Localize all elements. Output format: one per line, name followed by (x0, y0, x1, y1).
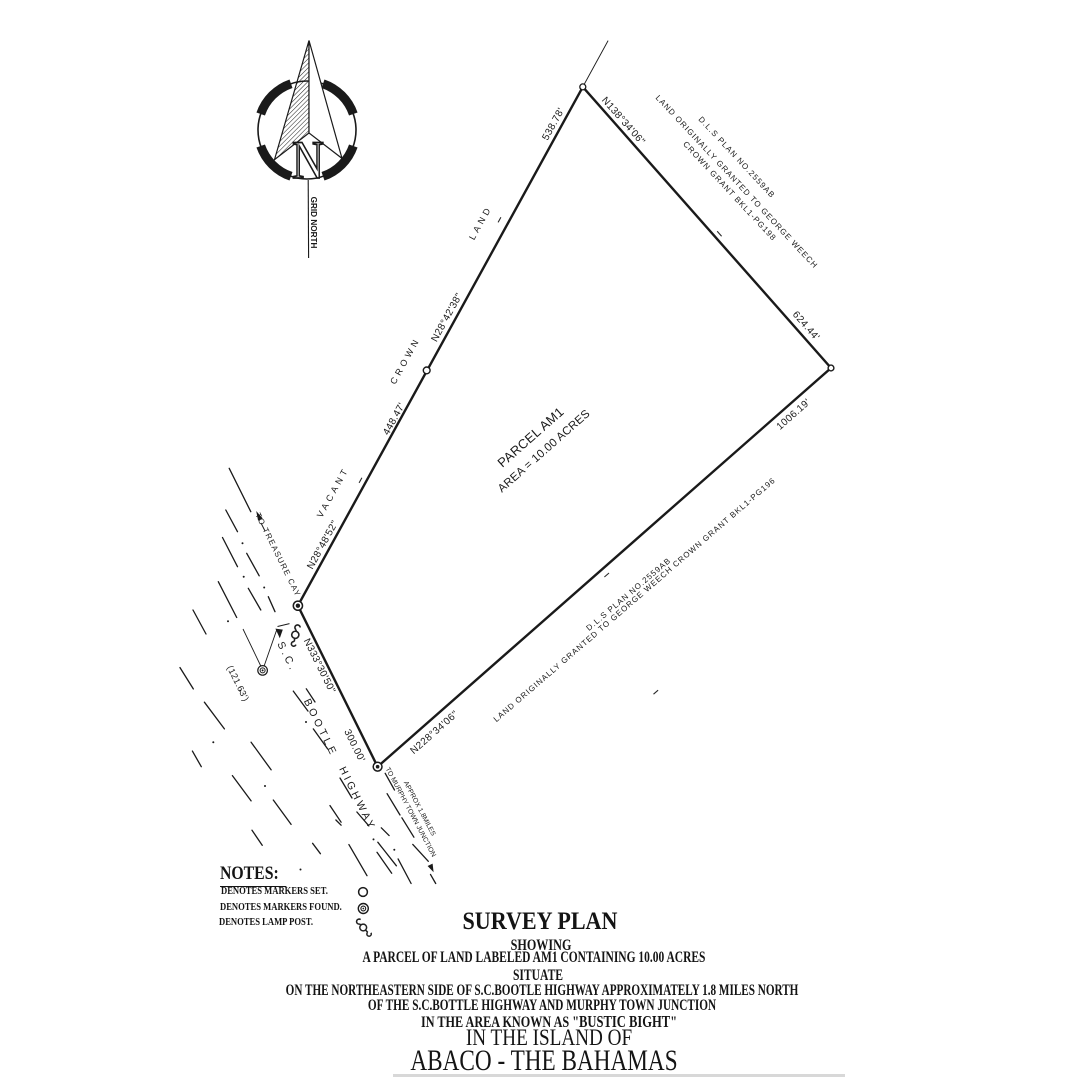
svg-text:LAND ORIGINALLY GRANTED TO GEO: LAND ORIGINALLY GRANTED TO GEORGE WEECH … (492, 476, 777, 724)
svg-text:LAND: LAND (467, 203, 494, 241)
svg-text:300.00': 300.00' (341, 728, 367, 765)
svg-text:TO MURPHY TOWN JUNCTION: TO MURPHY TOWN JUNCTION (384, 766, 437, 858)
svg-text:LAND ORIGINALLY GRANTED TO GEO: LAND ORIGINALLY GRANTED TO GEORGE WEECH (654, 93, 820, 270)
svg-text:GRID NORTH: GRID NORTH (309, 197, 318, 249)
svg-text:1006.19': 1006.19' (775, 397, 813, 432)
svg-text:N138°34'06": N138°34'06" (599, 95, 647, 147)
svg-text:TO TREASURE CAY: TO TREASURE CAY (253, 511, 302, 598)
svg-text:N333°30'50": N333°30'50" (301, 637, 337, 696)
svg-text:CROWN: CROWN (388, 335, 422, 386)
svg-text:N28°48'52": N28°48'52" (305, 519, 341, 572)
svg-text:BOOTLE: BOOTLE (301, 697, 340, 759)
svg-text:HIGHWAY: HIGHWAY (336, 765, 378, 833)
svg-text:(121.63'): (121.63') (225, 664, 251, 703)
svg-text:D.L.S PLAN NO.2559AB: D.L.S PLAN NO.2559AB (584, 556, 672, 633)
svg-text:VACANT: VACANT (315, 465, 351, 520)
